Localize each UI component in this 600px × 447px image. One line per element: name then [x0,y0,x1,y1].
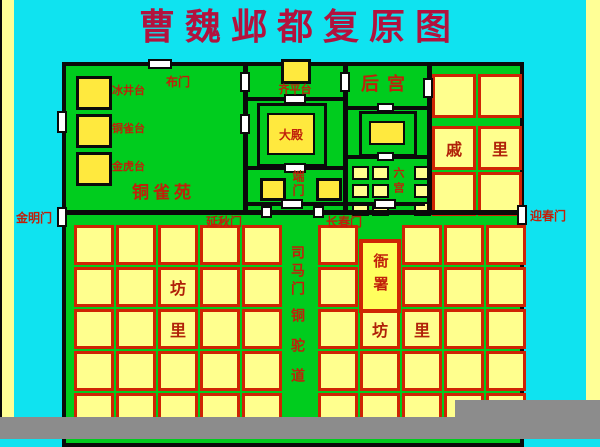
palace-city-divider-wall [62,210,524,215]
office-label: 衙署 [370,253,391,299]
north-gate-label: 布门 [166,73,190,90]
six-palaces-square [352,166,369,180]
left-yellow-strip [2,0,14,439]
rear-palace-building [369,121,405,145]
city-block [242,351,282,391]
city-block [402,351,442,391]
city-block [74,351,114,391]
city-block [74,309,114,349]
fangli-label: 里 [414,317,430,341]
right-yellow-strip [586,0,600,439]
city-block [486,267,526,307]
city-block [116,267,156,307]
city-block [486,351,526,391]
palace-south-wall [247,202,425,206]
duan-gate-side-building-west [260,178,286,201]
city-block [200,225,240,265]
city-block [116,309,156,349]
duan-gate-side-building-east [316,178,342,201]
city-block [318,351,358,391]
legend-label-tongquetai: 铜雀台 [112,120,145,136]
yanqiu-gate-label: 延秋门 [206,213,242,230]
city-block [486,225,526,265]
main-hall-building: 大殿 [267,113,315,155]
city-block [360,351,400,391]
six-palaces-square [372,184,389,198]
office-building: 衙署 [359,239,401,313]
city-block [402,267,442,307]
city-block [242,309,282,349]
legend-swatch-jinhutai [76,152,112,186]
city-block [74,225,114,265]
city-block [242,225,282,265]
rear-palace-label: 后宫 [347,70,427,96]
city-block [116,225,156,265]
city-block [444,309,484,349]
legend-label-jinhutai: 金虎台 [112,158,145,174]
city-block [444,267,484,307]
city-block [158,351,198,391]
east-gate-label: 迎春门 [530,207,566,224]
gate-mark-changchun [313,206,324,218]
gate-mark-rear-south [374,199,396,209]
main-hall-label: 大殿 [279,126,303,143]
six-palaces-label: 六宫 [390,167,406,197]
changchun-gate-label: 长春门 [326,213,362,230]
gate-mark-left-wall-upper [57,111,67,133]
qili-block: 戚 [432,126,476,170]
road-label: 铜驼道 [288,308,308,398]
west-gate-label: 金明门 [16,209,52,226]
legend-swatch-bingjingtai [76,76,112,110]
city-block: 里 [402,309,442,349]
cutoff-gray-bottom [0,417,600,439]
fangli-label: 坊 [170,275,186,299]
city-block: 里 [158,309,198,349]
qili-block [432,74,476,118]
map-title: 曹魏邺都复原图 [0,2,600,52]
city-block: 坊 [360,309,400,349]
city-block [200,309,240,349]
platform-label: 齐平台 [262,81,328,97]
gate-mark-sima-gate [281,199,303,209]
legend-swatch-tongquetai [76,114,112,148]
gate-mark-rear-building-north [377,103,394,112]
qili-block: 里 [478,126,522,170]
qili-label: 里 [492,136,508,160]
six-palaces-square [372,166,389,180]
city-block [74,267,114,307]
city-block [444,351,484,391]
city-block [402,225,442,265]
city-block [200,267,240,307]
duan-gate-label: 端门 [290,170,307,198]
city-block [486,309,526,349]
sima-gate-label: 司马门 [288,245,308,299]
city-block: 坊 [158,267,198,307]
qili-label: 戚 [446,136,462,160]
gate-mark-east-gate [517,205,527,225]
gate-mark-yanqiu [261,206,272,218]
city-block [318,267,358,307]
city-block [116,351,156,391]
garden-label: 铜雀苑 [132,178,195,203]
qili-block [478,74,522,118]
six-palaces-square [352,184,369,198]
north-gate-mark [148,59,172,69]
city-block [158,225,198,265]
gate-mark-west-gate [57,207,67,227]
city-block [318,309,358,349]
gate-mark-garden-east-upper [240,72,250,92]
city-block [318,225,358,265]
fangli-label: 坊 [372,317,388,341]
city-block [242,267,282,307]
fangli-label: 里 [170,317,186,341]
city-block [444,225,484,265]
gate-mark-rear-building-south [377,152,394,161]
legend-label-bingjingtai: 冰井台 [112,82,145,98]
gate-mark-garden-east-mid [240,114,250,134]
city-block [200,351,240,391]
ye-city-map: { "title": "曹魏邺都复原图", "legend": { "items… [0,0,600,439]
